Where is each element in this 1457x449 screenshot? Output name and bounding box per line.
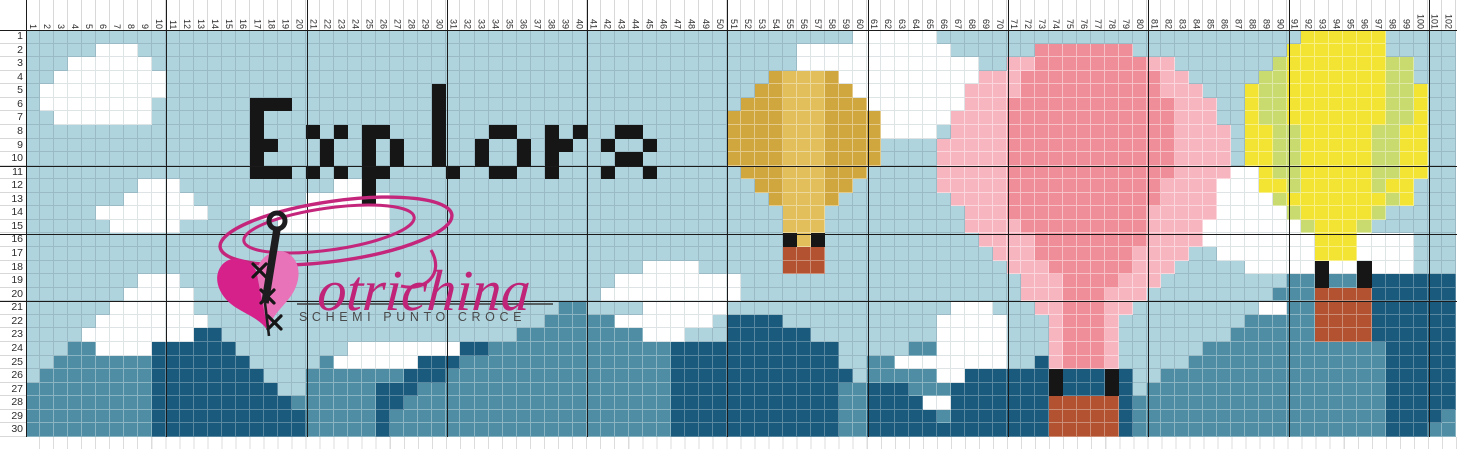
col-label: 97: [1372, 0, 1386, 30]
stitch-cell: [1245, 247, 1259, 261]
stitch-cell: [82, 111, 96, 125]
stitch-cell: [1231, 383, 1245, 397]
stitch-cell: [1372, 166, 1386, 180]
stitch-cell: [769, 410, 783, 424]
stitch-cell: [1021, 315, 1035, 329]
stitch-cell: [82, 179, 96, 193]
stitch-cell: [797, 152, 811, 166]
stitch-cell: [320, 84, 334, 98]
stitch-cell: [152, 84, 166, 98]
col-label: 50: [713, 0, 727, 30]
stitch-cell: [1063, 247, 1077, 261]
stitch-cell: [545, 423, 559, 437]
stitch-cell: [853, 315, 867, 329]
stitch-cell: [741, 125, 755, 139]
stitch-cell: [783, 356, 797, 370]
stitch-cell: [811, 179, 825, 193]
stitch-cell: [853, 423, 867, 437]
stitch-cell: [881, 342, 895, 356]
stitch-cell: [895, 301, 909, 315]
stitch-cell: [194, 423, 208, 437]
stitch-cell: [96, 179, 110, 193]
stitch-cell: [278, 166, 292, 180]
stitch-cell: [615, 288, 629, 302]
stitch-cell: [825, 84, 839, 98]
stitch-cell: [460, 383, 474, 397]
stitch-cell: [937, 369, 951, 383]
stitch-cell: [1175, 301, 1189, 315]
stitch-cell: [306, 44, 320, 58]
stitch-cell: [573, 423, 587, 437]
stitch-cell: [951, 179, 965, 193]
stitch-cell: [909, 30, 923, 44]
heart-icon: [214, 248, 308, 338]
stitch-cell: [769, 98, 783, 112]
stitch-cell: [1315, 288, 1329, 302]
stitch-cell: [951, 193, 965, 207]
stitch-cell: [1259, 383, 1273, 397]
stitch-cell: [1301, 301, 1315, 315]
stitch-cell: [1414, 369, 1428, 383]
stitch-cell: [1217, 233, 1231, 247]
stitch-cell: [1372, 179, 1386, 193]
stitch-cell: [965, 383, 979, 397]
stitch-cell: [867, 179, 881, 193]
stitch-cell: [1035, 247, 1049, 261]
stitch-cell: [446, 84, 460, 98]
stitch-cell: [881, 301, 895, 315]
row-label: 4: [0, 71, 26, 85]
stitch-cell: [1119, 301, 1133, 315]
stitch-cell: [1301, 71, 1315, 85]
stitch-cell: [923, 193, 937, 207]
stitch-cell: [839, 152, 853, 166]
stitch-cell: [923, 423, 937, 437]
stitch-cell: [755, 396, 769, 410]
stitch-cell: [839, 423, 853, 437]
stitch-cell: [1245, 71, 1259, 85]
stitch-cell: [1231, 166, 1245, 180]
stitch-cell: [1217, 125, 1231, 139]
stitch-cell: [82, 356, 96, 370]
stitch-cell: [152, 139, 166, 153]
stitch-cell: [1133, 288, 1147, 302]
stitch-cell: [699, 423, 713, 437]
stitch-cell: [110, 179, 124, 193]
stitch-cell: [362, 356, 376, 370]
stitch-cell: [937, 30, 951, 44]
stitch-cell: [432, 369, 446, 383]
stitch-cell: [236, 383, 250, 397]
col-label: 52: [741, 0, 755, 30]
stitch-cell: [250, 98, 264, 112]
stitch-cell: [54, 71, 68, 85]
stitch-cell: [446, 139, 460, 153]
stitch-cell: [460, 57, 474, 71]
stitch-cell: [1231, 410, 1245, 424]
stitch-cell: [1189, 206, 1203, 220]
stitch-cell: [250, 30, 264, 44]
col-label: 24: [348, 0, 362, 30]
stitch-cell: [993, 139, 1007, 153]
stitch-cell: [1175, 57, 1189, 71]
stitch-cell: [587, 44, 601, 58]
stitch-cell: [685, 193, 699, 207]
stitch-cell: [741, 315, 755, 329]
stitch-cell: [881, 423, 895, 437]
stitch-cell: [1329, 84, 1343, 98]
stitch-cell: [615, 125, 629, 139]
stitch-cell: [54, 328, 68, 342]
col-label: 60: [853, 0, 867, 30]
stitch-cell: [713, 179, 727, 193]
stitch-cell: [811, 152, 825, 166]
stitch-cell: [937, 111, 951, 125]
stitch-cell: [1147, 71, 1161, 85]
stitch-cell: [979, 193, 993, 207]
stitch-cell: [1414, 152, 1428, 166]
stitch-cell: [545, 30, 559, 44]
stitch-cell: [685, 206, 699, 220]
stitch-cell: [152, 30, 166, 44]
stitch-cell: [208, 84, 222, 98]
stitch-cell: [68, 44, 82, 58]
stitch-cell: [657, 71, 671, 85]
stitch-cell: [867, 396, 881, 410]
stitch-cell: [825, 356, 839, 370]
stitch-cell: [713, 396, 727, 410]
stitch-cell: [82, 30, 96, 44]
stitch-cell: [993, 125, 1007, 139]
stitch-cell: [460, 98, 474, 112]
stitch-cell: [1245, 315, 1259, 329]
stitch-cell: [208, 166, 222, 180]
stitch-cell: [110, 57, 124, 71]
stitch-cell: [1203, 342, 1217, 356]
stitch-cell: [1203, 261, 1217, 275]
stitch-cell: [657, 233, 671, 247]
stitch-cell: [951, 247, 965, 261]
stitch-cell: [54, 206, 68, 220]
stitch-cell: [629, 315, 643, 329]
stitch-cell: [839, 84, 853, 98]
stitch-cell: [629, 342, 643, 356]
stitch-cell: [629, 261, 643, 275]
stitch-cell: [895, 342, 909, 356]
stitch-cell: [68, 301, 82, 315]
stitch-cell: [1400, 125, 1414, 139]
stitch-cell: [937, 274, 951, 288]
stitch-cell: [475, 369, 489, 383]
stitch-cell: [1049, 57, 1063, 71]
stitch-cell: [1133, 247, 1147, 261]
stitch-cell: [671, 396, 685, 410]
stitch-cell: [208, 44, 222, 58]
stitch-cell: [1301, 233, 1315, 247]
stitch-cell: [741, 342, 755, 356]
stitch-cell: [727, 301, 741, 315]
stitch-cell: [923, 356, 937, 370]
stitch-cell: [1400, 57, 1414, 71]
stitch-cell: [1231, 233, 1245, 247]
stitch-cell: [895, 261, 909, 275]
stitch-cell: [1175, 315, 1189, 329]
stitch-cell: [685, 247, 699, 261]
stitch-cell: [1329, 369, 1343, 383]
stitch-cell: [867, 98, 881, 112]
stitch-cell: [26, 111, 40, 125]
stitch-cell: [1147, 57, 1161, 71]
stitch-cell: [1007, 84, 1021, 98]
stitch-cell: [376, 396, 390, 410]
stitch-cell: [40, 193, 54, 207]
stitch-cell: [601, 369, 615, 383]
stitch-cell: [1189, 274, 1203, 288]
stitch-cell: [54, 383, 68, 397]
stitch-cell: [194, 30, 208, 44]
stitch-cell: [1119, 383, 1133, 397]
stitch-cell: [1077, 206, 1091, 220]
stitch-cell: [923, 57, 937, 71]
stitch-cell: [180, 166, 194, 180]
stitch-cell: [1133, 383, 1147, 397]
stitch-cell: [1259, 315, 1273, 329]
stitch-cell: [1231, 396, 1245, 410]
stitch-cell: [587, 139, 601, 153]
stitch-cell: [1091, 193, 1105, 207]
stitch-cell: [1007, 288, 1021, 302]
stitch-cell: [208, 383, 222, 397]
stitch-cell: [110, 247, 124, 261]
col-label: 78: [1105, 0, 1119, 30]
stitch-cell: [797, 356, 811, 370]
stitch-cell: [979, 396, 993, 410]
stitch-cell: [951, 356, 965, 370]
stitch-cell: [1301, 383, 1315, 397]
stitch-cell: [124, 139, 138, 153]
stitch-cell: [895, 220, 909, 234]
stitch-cell: [1217, 423, 1231, 437]
row-label: 3: [0, 57, 26, 71]
stitch-cell: [965, 111, 979, 125]
stitch-cell: [278, 139, 292, 153]
stitch-cell: [236, 423, 250, 437]
stitch-cell: [573, 369, 587, 383]
stitch-cell: [685, 30, 699, 44]
stitch-cell: [1372, 193, 1386, 207]
stitch-cell: [1049, 111, 1063, 125]
stitch-cell: [881, 111, 895, 125]
stitch-cell: [1301, 125, 1315, 139]
stitch-cell: [937, 383, 951, 397]
stitch-cell: [320, 410, 334, 424]
stitch-cell: [40, 84, 54, 98]
stitch-cell: [937, 288, 951, 302]
stitch-cell: [503, 152, 517, 166]
stitch-cell: [489, 396, 503, 410]
stitch-cell: [923, 166, 937, 180]
stitch-cell: [1063, 57, 1077, 71]
stitch-cell: [489, 423, 503, 437]
col-label: 93: [1315, 0, 1329, 30]
stitch-cell: [909, 342, 923, 356]
stitch-cell: [1147, 44, 1161, 58]
stitch-cell: [1231, 261, 1245, 275]
stitch-cell: [895, 396, 909, 410]
stitch-cell: [979, 71, 993, 85]
stitch-cell: [110, 328, 124, 342]
stitch-cell: [629, 233, 643, 247]
stitch-cell: [909, 423, 923, 437]
stitch-cell: [1175, 261, 1189, 275]
stitch-cell: [853, 396, 867, 410]
stitch-cell: [1329, 139, 1343, 153]
stitch-cell: [741, 193, 755, 207]
stitch-cell: [152, 220, 166, 234]
stitch-cell: [853, 84, 867, 98]
col-label: 75: [1063, 0, 1077, 30]
stitch-cell: [517, 356, 531, 370]
stitch-cell: [979, 220, 993, 234]
stitch-cell: [1386, 139, 1400, 153]
col-label: 31: [446, 0, 460, 30]
row-label: 22: [0, 315, 26, 329]
stitch-cell: [1386, 44, 1400, 58]
stitch-cell: [1329, 261, 1343, 275]
stitch-cell: [320, 396, 334, 410]
stitch-cell: [194, 44, 208, 58]
stitch-cell: [110, 111, 124, 125]
stitch-cell: [1189, 342, 1203, 356]
stitch-cell: [811, 423, 825, 437]
stitch-cell: [503, 71, 517, 85]
stitch-cell: [671, 410, 685, 424]
stitch-cell: [657, 193, 671, 207]
stitch-cell: [1315, 247, 1329, 261]
stitch-cell: [1217, 369, 1231, 383]
stitch-cell: [727, 410, 741, 424]
stitch-cell: [124, 288, 138, 302]
stitch-cell: [517, 396, 531, 410]
stitch-cell: [362, 139, 376, 153]
stitch-cell: [1105, 247, 1119, 261]
stitch-cell: [1147, 98, 1161, 112]
stitch-cell: [96, 84, 110, 98]
stitch-cell: [881, 261, 895, 275]
stitch-cell: [82, 274, 96, 288]
stitch-cell: [26, 383, 40, 397]
stitch-cell: [965, 206, 979, 220]
stitch-cell: [334, 71, 348, 85]
stitch-cell: [1035, 166, 1049, 180]
stitch-cell: [727, 383, 741, 397]
stitch-cell: [755, 71, 769, 85]
stitch-cell: [376, 125, 390, 139]
stitch-cell: [937, 410, 951, 424]
stitch-cell: [1175, 356, 1189, 370]
stitch-cell: [1231, 288, 1245, 302]
stitch-cell: [783, 84, 797, 98]
stitch-cell: [909, 139, 923, 153]
stitch-cell: [1301, 166, 1315, 180]
stitch-cell: [1189, 328, 1203, 342]
stitch-cell: [797, 71, 811, 85]
stitch-cell: [1119, 152, 1133, 166]
stitch-cell: [1091, 179, 1105, 193]
stitch-cell: [993, 356, 1007, 370]
stitch-cell: [1105, 261, 1119, 275]
stitch-cell: [601, 44, 615, 58]
stitch-cell: [1386, 383, 1400, 397]
stitch-cell: [1357, 84, 1371, 98]
stitch-cell: [979, 44, 993, 58]
stitch-cell: [1329, 57, 1343, 71]
stitch-cell: [475, 356, 489, 370]
stitch-cell: [1442, 369, 1456, 383]
stitch-cell: [1105, 369, 1119, 383]
stitch-cell: [685, 396, 699, 410]
stitch-cell: [671, 166, 685, 180]
stitch-cell: [741, 179, 755, 193]
stitch-cell: [54, 125, 68, 139]
stitch-cell: [432, 152, 446, 166]
stitch-cell: [96, 233, 110, 247]
stitch-cell: [699, 179, 713, 193]
stitch-cell: [1400, 30, 1414, 44]
stitch-cell: [909, 98, 923, 112]
stitch-cell: [769, 111, 783, 125]
stitch-cell: [643, 247, 657, 261]
stitch-cell: [881, 98, 895, 112]
stitch-cell: [1442, 261, 1456, 275]
stitch-cell: [965, 139, 979, 153]
stitch-cell: [334, 44, 348, 58]
stitch-cell: [348, 423, 362, 437]
stitch-cell: [797, 274, 811, 288]
stitch-cell: [278, 396, 292, 410]
stitch-cell: [573, 383, 587, 397]
stitch-cell: [965, 98, 979, 112]
stitch-cell: [348, 57, 362, 71]
stitch-cell: [166, 139, 180, 153]
stitch-cell: [489, 152, 503, 166]
stitch-cell: [1049, 71, 1063, 85]
stitch-cell: [797, 423, 811, 437]
stitch-cell: [587, 166, 601, 180]
stitch-cell: [615, 328, 629, 342]
stitch-cell: [222, 57, 236, 71]
stitch-cell: [951, 220, 965, 234]
stitch-cell: [1372, 383, 1386, 397]
stitch-cell: [1007, 30, 1021, 44]
stitch-cell: [657, 274, 671, 288]
stitch-cell: [615, 261, 629, 275]
stitch-cell: [601, 423, 615, 437]
stitch-cell: [895, 166, 909, 180]
stitch-cell: [545, 356, 559, 370]
stitch-cell: [797, 193, 811, 207]
row-label: 26: [0, 369, 26, 383]
stitch-cell: [1343, 288, 1357, 302]
stitch-cell: [1301, 328, 1315, 342]
stitch-cell: [1133, 166, 1147, 180]
stitch-cell: [685, 220, 699, 234]
stitch-cell: [769, 179, 783, 193]
stitch-cell: [685, 383, 699, 397]
stitch-cell: [1245, 84, 1259, 98]
stitch-cell: [685, 71, 699, 85]
col-label: 13: [194, 0, 208, 30]
